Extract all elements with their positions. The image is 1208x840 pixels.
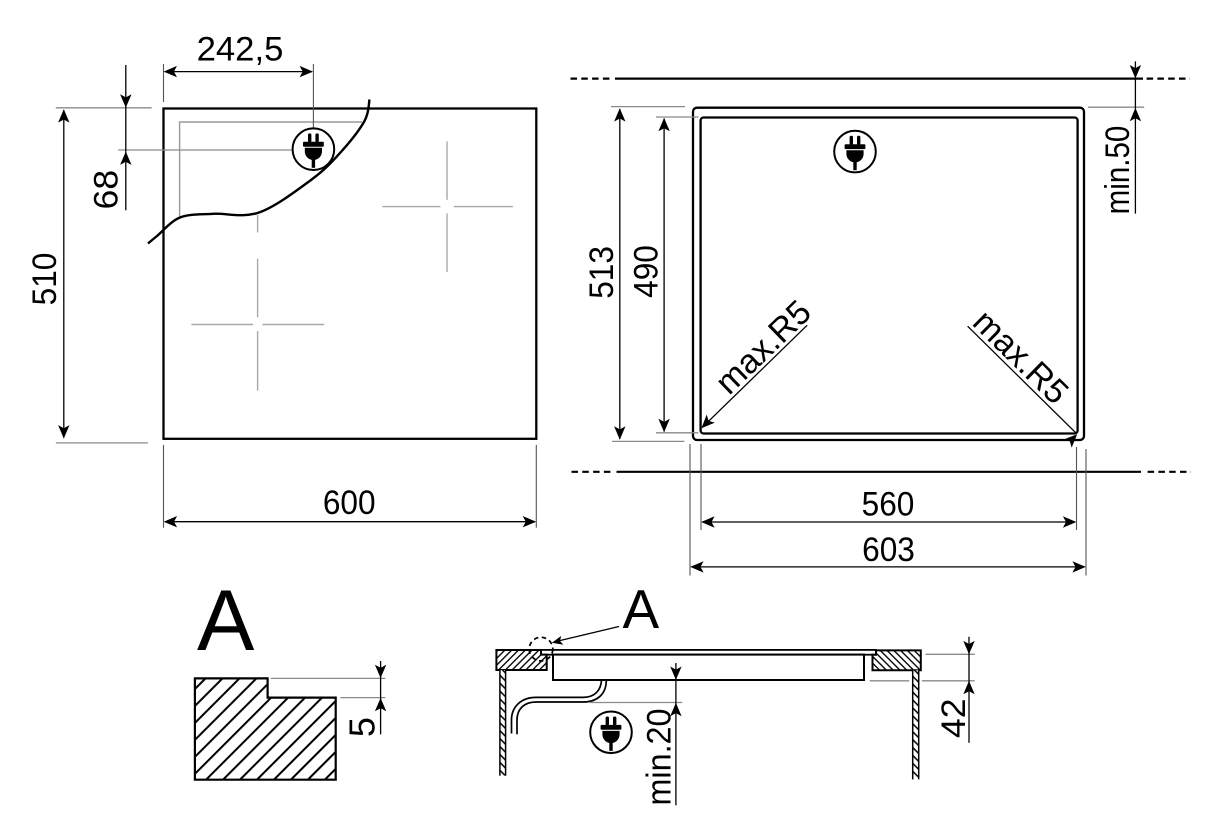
svg-text:242,5: 242,5	[197, 31, 284, 69]
svg-text:490: 490	[626, 245, 664, 298]
svg-text:603: 603	[862, 530, 915, 568]
svg-text:A: A	[623, 578, 660, 640]
svg-text:513: 513	[582, 246, 620, 299]
svg-text:510: 510	[25, 253, 63, 306]
svg-text:68: 68	[87, 170, 125, 210]
svg-text:min.50: min.50	[1098, 126, 1136, 215]
svg-text:A: A	[197, 573, 255, 669]
svg-text:600: 600	[323, 483, 376, 521]
svg-text:min.20: min.20	[641, 709, 679, 806]
svg-text:560: 560	[862, 484, 915, 522]
svg-text:5: 5	[342, 717, 383, 737]
svg-text:42: 42	[935, 698, 973, 738]
